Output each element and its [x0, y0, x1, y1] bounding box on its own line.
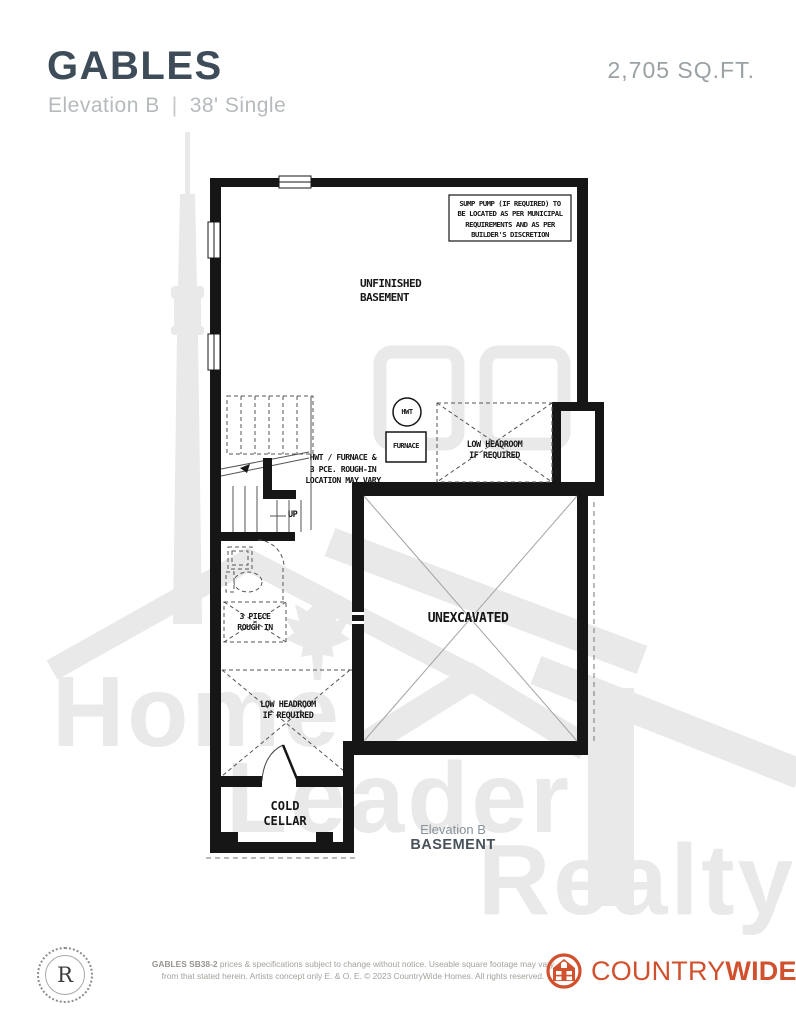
- low-headroom-bottom-label: LOW HEADROOM IF REQUIRED: [232, 700, 344, 722]
- sump-note-line: REQUIREMENTS AND AS PER: [450, 220, 570, 230]
- sump-note-line: BUILDER'S DISCRETION: [450, 230, 570, 240]
- page: GABLES Elevation B|38' Single 2,705 SQ.F…: [0, 0, 796, 1030]
- disclaimer: GABLES SB38-2 prices & specifications su…: [137, 959, 569, 982]
- window-icon: [208, 176, 311, 370]
- countrywide-logo: COUNTRYWIDE: [544, 951, 796, 991]
- unexcavated-label: UNEXCAVATED: [398, 611, 538, 627]
- sump-note-line: SUMP PUMP (IF REQUIRED) TO: [450, 199, 570, 209]
- disclaimer-model: GABLES SB38-2: [152, 959, 218, 969]
- up-label: UP: [288, 510, 297, 521]
- door-swing-icon: [262, 745, 283, 781]
- hwt-label: HWT: [393, 408, 421, 417]
- countrywide-wordmark: COUNTRYWIDE: [591, 956, 796, 987]
- plan-caption: Elevation B BASEMENT: [392, 822, 514, 853]
- sump-pump-note: SUMP PUMP (IF REQUIRED) TO BE LOCATED AS…: [450, 199, 570, 240]
- countrywide-house-icon: [544, 951, 584, 991]
- caption-elevation: Elevation B: [392, 822, 514, 837]
- disclaimer-line-2: from that stated herein. Artists concept…: [137, 971, 569, 983]
- rough-in-label: 3 PIECE ROUGH IN: [224, 611, 286, 633]
- sump-note-line: BE LOCATED AS PER MUNICIPAL: [450, 209, 570, 219]
- seal-letter: R: [45, 955, 85, 995]
- furnace-label: FURNACE: [386, 442, 426, 451]
- caption-level: BASEMENT: [392, 837, 514, 853]
- unfinished-basement-label: UNFINISHED BASEMENT: [360, 277, 450, 304]
- low-headroom-bottom-area: [222, 670, 352, 776]
- hwt-furnace-note: HWT / FURNACE & 3 PCE. ROUGH-IN LOCATION…: [284, 452, 402, 487]
- realtor-seal: R: [37, 947, 93, 1003]
- disclaimer-line-1: GABLES SB38-2 prices & specifications su…: [137, 959, 569, 971]
- cold-cellar-label: COLD CELLAR: [239, 799, 331, 829]
- low-headroom-right-label: LOW HEADROOM IF REQUIRED: [437, 440, 552, 462]
- floorplan-drawing: [0, 0, 796, 1030]
